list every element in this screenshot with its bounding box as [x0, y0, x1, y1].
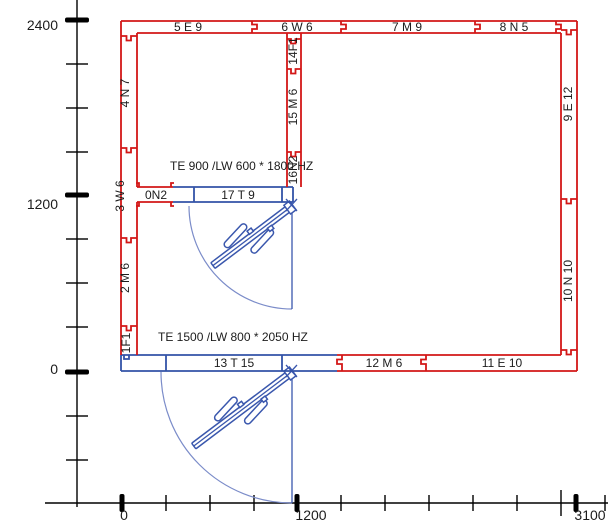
y-minor-tick [66, 151, 88, 152]
door-annotation: TE 900 /LW 600 * 1800 HZ [170, 159, 313, 173]
wall-segment-label: 2 M 6 [118, 263, 132, 293]
wall-segment-label: 15 M 6 [286, 88, 300, 125]
x-axis-label: 1200 [295, 507, 326, 523]
x-grid-tick [560, 490, 561, 516]
wall-segment-label: 13 T 15 [214, 356, 255, 370]
wall-segment-label: 10 N 10 [561, 260, 575, 302]
y-major-tick [65, 370, 89, 375]
y-minor-tick [66, 326, 88, 327]
wall-segment-label: 7 M 9 [392, 20, 422, 34]
x-axis-label: 0 [120, 507, 128, 523]
wall-segment-label: 9 E 12 [561, 86, 575, 121]
y-ruler: 2400 1200 0 [27, 0, 89, 507]
y-major-tick [65, 18, 89, 23]
wall-segment-label: 12 M 6 [366, 356, 403, 370]
door-panel-edge [194, 373, 291, 446]
cad-floor-plan-canvas: 2400 1200 0 0 1200 3100 [0, 0, 608, 523]
wall-segment-label: 6 W 6 [281, 20, 313, 34]
x-minor-tick [384, 495, 385, 511]
y-axis-label: 1200 [27, 196, 58, 212]
x-minor-tick [165, 495, 166, 511]
x-minor-tick [516, 495, 517, 511]
x-ruler: 0 1200 3100 [45, 490, 608, 523]
y-minor-tick [66, 63, 88, 64]
y-minor-tick [66, 459, 88, 460]
door-te1500[interactable] [161, 359, 302, 503]
y-minor-tick [66, 282, 88, 283]
y-minor-tick [66, 238, 88, 239]
door-te900[interactable] [189, 193, 302, 309]
x-minor-tick [209, 495, 210, 511]
x-minor-tick [472, 495, 473, 511]
door-leaf[interactable] [184, 359, 302, 459]
y-minor-tick [66, 107, 88, 108]
wall-segment-label: 8 N 5 [500, 20, 529, 34]
floor-plan-drawing: 2400 1200 0 0 1200 3100 [0, 0, 608, 523]
wall-segment-label: 11 E 10 [482, 356, 523, 370]
wall-segment-label: 3 W 6 [113, 180, 127, 212]
wall-right[interactable] [561, 21, 577, 371]
wall-segment-label: 5 E 9 [174, 20, 202, 34]
wall-segment-label: 0N2 [145, 188, 167, 202]
x-axis-label: 3100 [574, 507, 605, 523]
wall-labels: 5 E 9 6 W 6 7 M 9 8 N 5 4 N 7 3 W 6 2 M … [113, 20, 575, 370]
wall-joint-marks [121, 21, 577, 371]
y-minor-tick [66, 415, 88, 416]
wall-segment-label: 14F1 [286, 37, 300, 65]
wall-segment-label: 1F1 [119, 332, 133, 353]
wall-segment-label: 17 T 9 [221, 188, 255, 202]
red-walls[interactable] [121, 21, 577, 371]
door-annotation: TE 1500 /LW 800 * 2050 HZ [158, 330, 308, 344]
wall-segment-label: 4 N 7 [118, 78, 132, 107]
door-panel-edge [213, 207, 290, 265]
y-axis-label: 0 [50, 361, 58, 377]
x-minor-tick [428, 495, 429, 511]
y-major-tick [65, 193, 89, 198]
y-axis-label: 2400 [27, 17, 58, 33]
x-minor-tick [340, 495, 341, 511]
door-leaf[interactable] [203, 193, 302, 279]
